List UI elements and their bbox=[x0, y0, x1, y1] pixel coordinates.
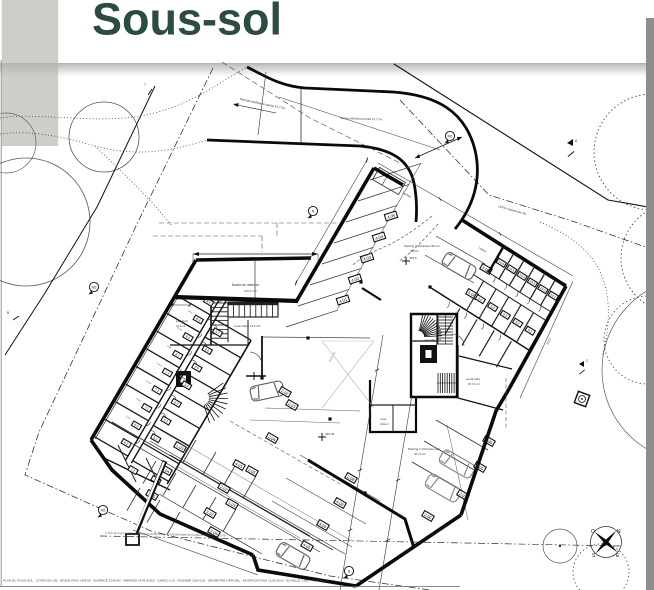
svg-text:Parking 7 Véhicules 95 m2: Parking 7 Véhicules 95 m2 bbox=[404, 244, 440, 248]
svg-text:Bassin de rétention: Bassin de rétention bbox=[232, 283, 260, 287]
svg-text:105.0 m3: 105.0 m3 bbox=[244, 289, 257, 293]
svg-text:30.74 m2: 30.74 m2 bbox=[468, 382, 480, 386]
svg-text:40.74 m2: 40.74 m2 bbox=[414, 452, 426, 456]
svg-text:N: N bbox=[617, 529, 621, 535]
svg-text:NO: NO bbox=[101, 509, 106, 513]
svg-text:429.5: 429.5 bbox=[409, 256, 417, 260]
svg-text:429.06: 429.06 bbox=[325, 432, 335, 436]
svg-text:+ Escalier M05: + Escalier M05 bbox=[424, 338, 442, 342]
svg-text:Local Vélo: Local Vélo bbox=[466, 377, 480, 381]
svg-text:PLAN DU SOUS-SOL · COTES EN CM: PLAN DU SOUS-SOL · COTES EN CM · NIVEAU … bbox=[3, 579, 329, 583]
svg-text:NO: NO bbox=[92, 286, 97, 290]
svg-text:429.07: 429.07 bbox=[410, 249, 419, 253]
svg-text:NO: NO bbox=[448, 135, 453, 139]
svg-text:Local: Local bbox=[380, 417, 387, 421]
svg-text:7: 7 bbox=[144, 83, 146, 87]
svg-text:B: B bbox=[7, 311, 9, 315]
svg-text:O: O bbox=[591, 529, 595, 535]
svg-text:Local Vélos 73.5 m2: Local Vélos 73.5 m2 bbox=[234, 324, 261, 328]
svg-text:Sous-sol: Sous-sol bbox=[92, 0, 282, 45]
svg-text:B: B bbox=[348, 570, 350, 574]
svg-text:Parking 2 Véhicules Ext: Parking 2 Véhicules Ext bbox=[408, 447, 440, 451]
svg-text:Vélos 2: Vélos 2 bbox=[380, 422, 389, 426]
